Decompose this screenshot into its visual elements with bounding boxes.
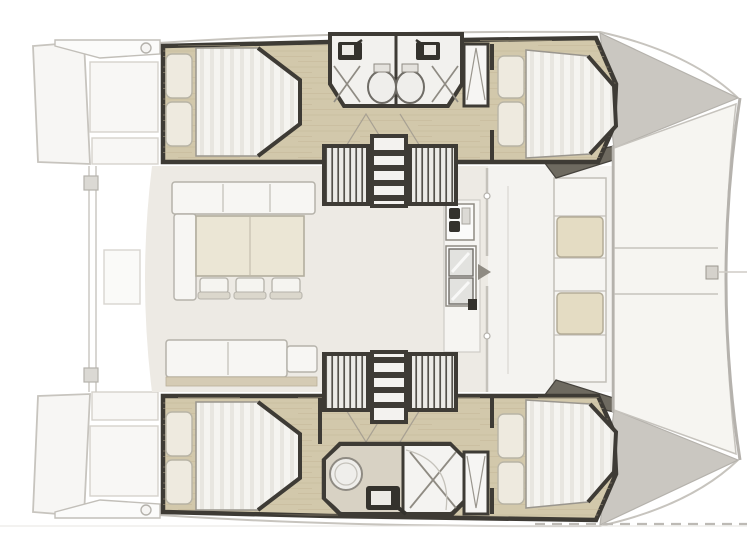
forward-seat-cushion (557, 217, 603, 257)
beam-fitting (84, 176, 98, 190)
swim-platform-port (33, 42, 90, 164)
starboard-aft-cabin (166, 402, 300, 510)
pillow (166, 460, 192, 504)
galley-sink-basin (449, 208, 460, 219)
galley-sink-basin (449, 221, 460, 232)
chair (200, 278, 228, 293)
toilet-tank (402, 64, 418, 72)
beam-center-fitting (706, 266, 718, 279)
winch-port (141, 43, 151, 53)
pillow (498, 56, 524, 98)
forward-seat-cushion (557, 293, 603, 334)
staircase (410, 146, 456, 204)
galley (444, 200, 480, 352)
side-seat (174, 214, 196, 300)
galley-faucet (468, 299, 477, 310)
chair-back (198, 292, 230, 299)
chair (236, 278, 264, 293)
pillow (498, 102, 524, 146)
ladder-rung (372, 150, 406, 156)
side-deck-panel (90, 426, 158, 496)
ladder-rung (372, 180, 406, 186)
pillow (166, 54, 192, 98)
floorplan-image (0, 0, 747, 560)
staircase (324, 354, 368, 410)
toilet (368, 71, 396, 103)
aft-bench-end (287, 346, 317, 372)
chair-back (234, 292, 266, 299)
side-deck-panel (92, 392, 158, 420)
ladder-rung (372, 165, 406, 171)
sink-basin (371, 491, 391, 505)
pillow (166, 102, 192, 146)
staircase (324, 146, 368, 204)
starboard-stairs (324, 352, 456, 422)
port-stairs (324, 136, 456, 206)
pillow (166, 412, 192, 456)
ladder-rung (372, 387, 406, 393)
aft-bench (166, 340, 287, 377)
settee-bench (172, 182, 315, 214)
swim-platform-starboard (33, 394, 90, 516)
beam-fitting (84, 368, 98, 382)
sink-basin (424, 45, 436, 55)
starboard-bathroom (324, 444, 466, 514)
chair-back (270, 292, 302, 299)
aft-bench-back (166, 377, 317, 386)
staircase (410, 354, 456, 410)
ladder-rung (372, 372, 406, 378)
toilet (396, 71, 424, 103)
aft-locker (104, 250, 140, 304)
wall-knob (484, 193, 490, 199)
port-bathrooms (330, 34, 462, 106)
dining-chairs (198, 278, 302, 299)
port-aft-cabin (166, 48, 300, 156)
side-deck-panel (90, 62, 158, 132)
ladder-rung (372, 357, 406, 363)
winch-starboard (141, 505, 151, 515)
sink-basin (342, 45, 354, 55)
ladder-rung (372, 195, 406, 201)
foredeck (600, 33, 747, 525)
wall-knob (484, 333, 490, 339)
toilet-tank (374, 64, 390, 72)
chair (272, 278, 300, 293)
side-deck-panel (92, 138, 158, 164)
galley-drainboard (462, 208, 470, 224)
ladder-rung (372, 402, 406, 408)
forward-bench-frame (554, 178, 606, 382)
pillow (498, 462, 524, 504)
pillow (498, 414, 524, 458)
